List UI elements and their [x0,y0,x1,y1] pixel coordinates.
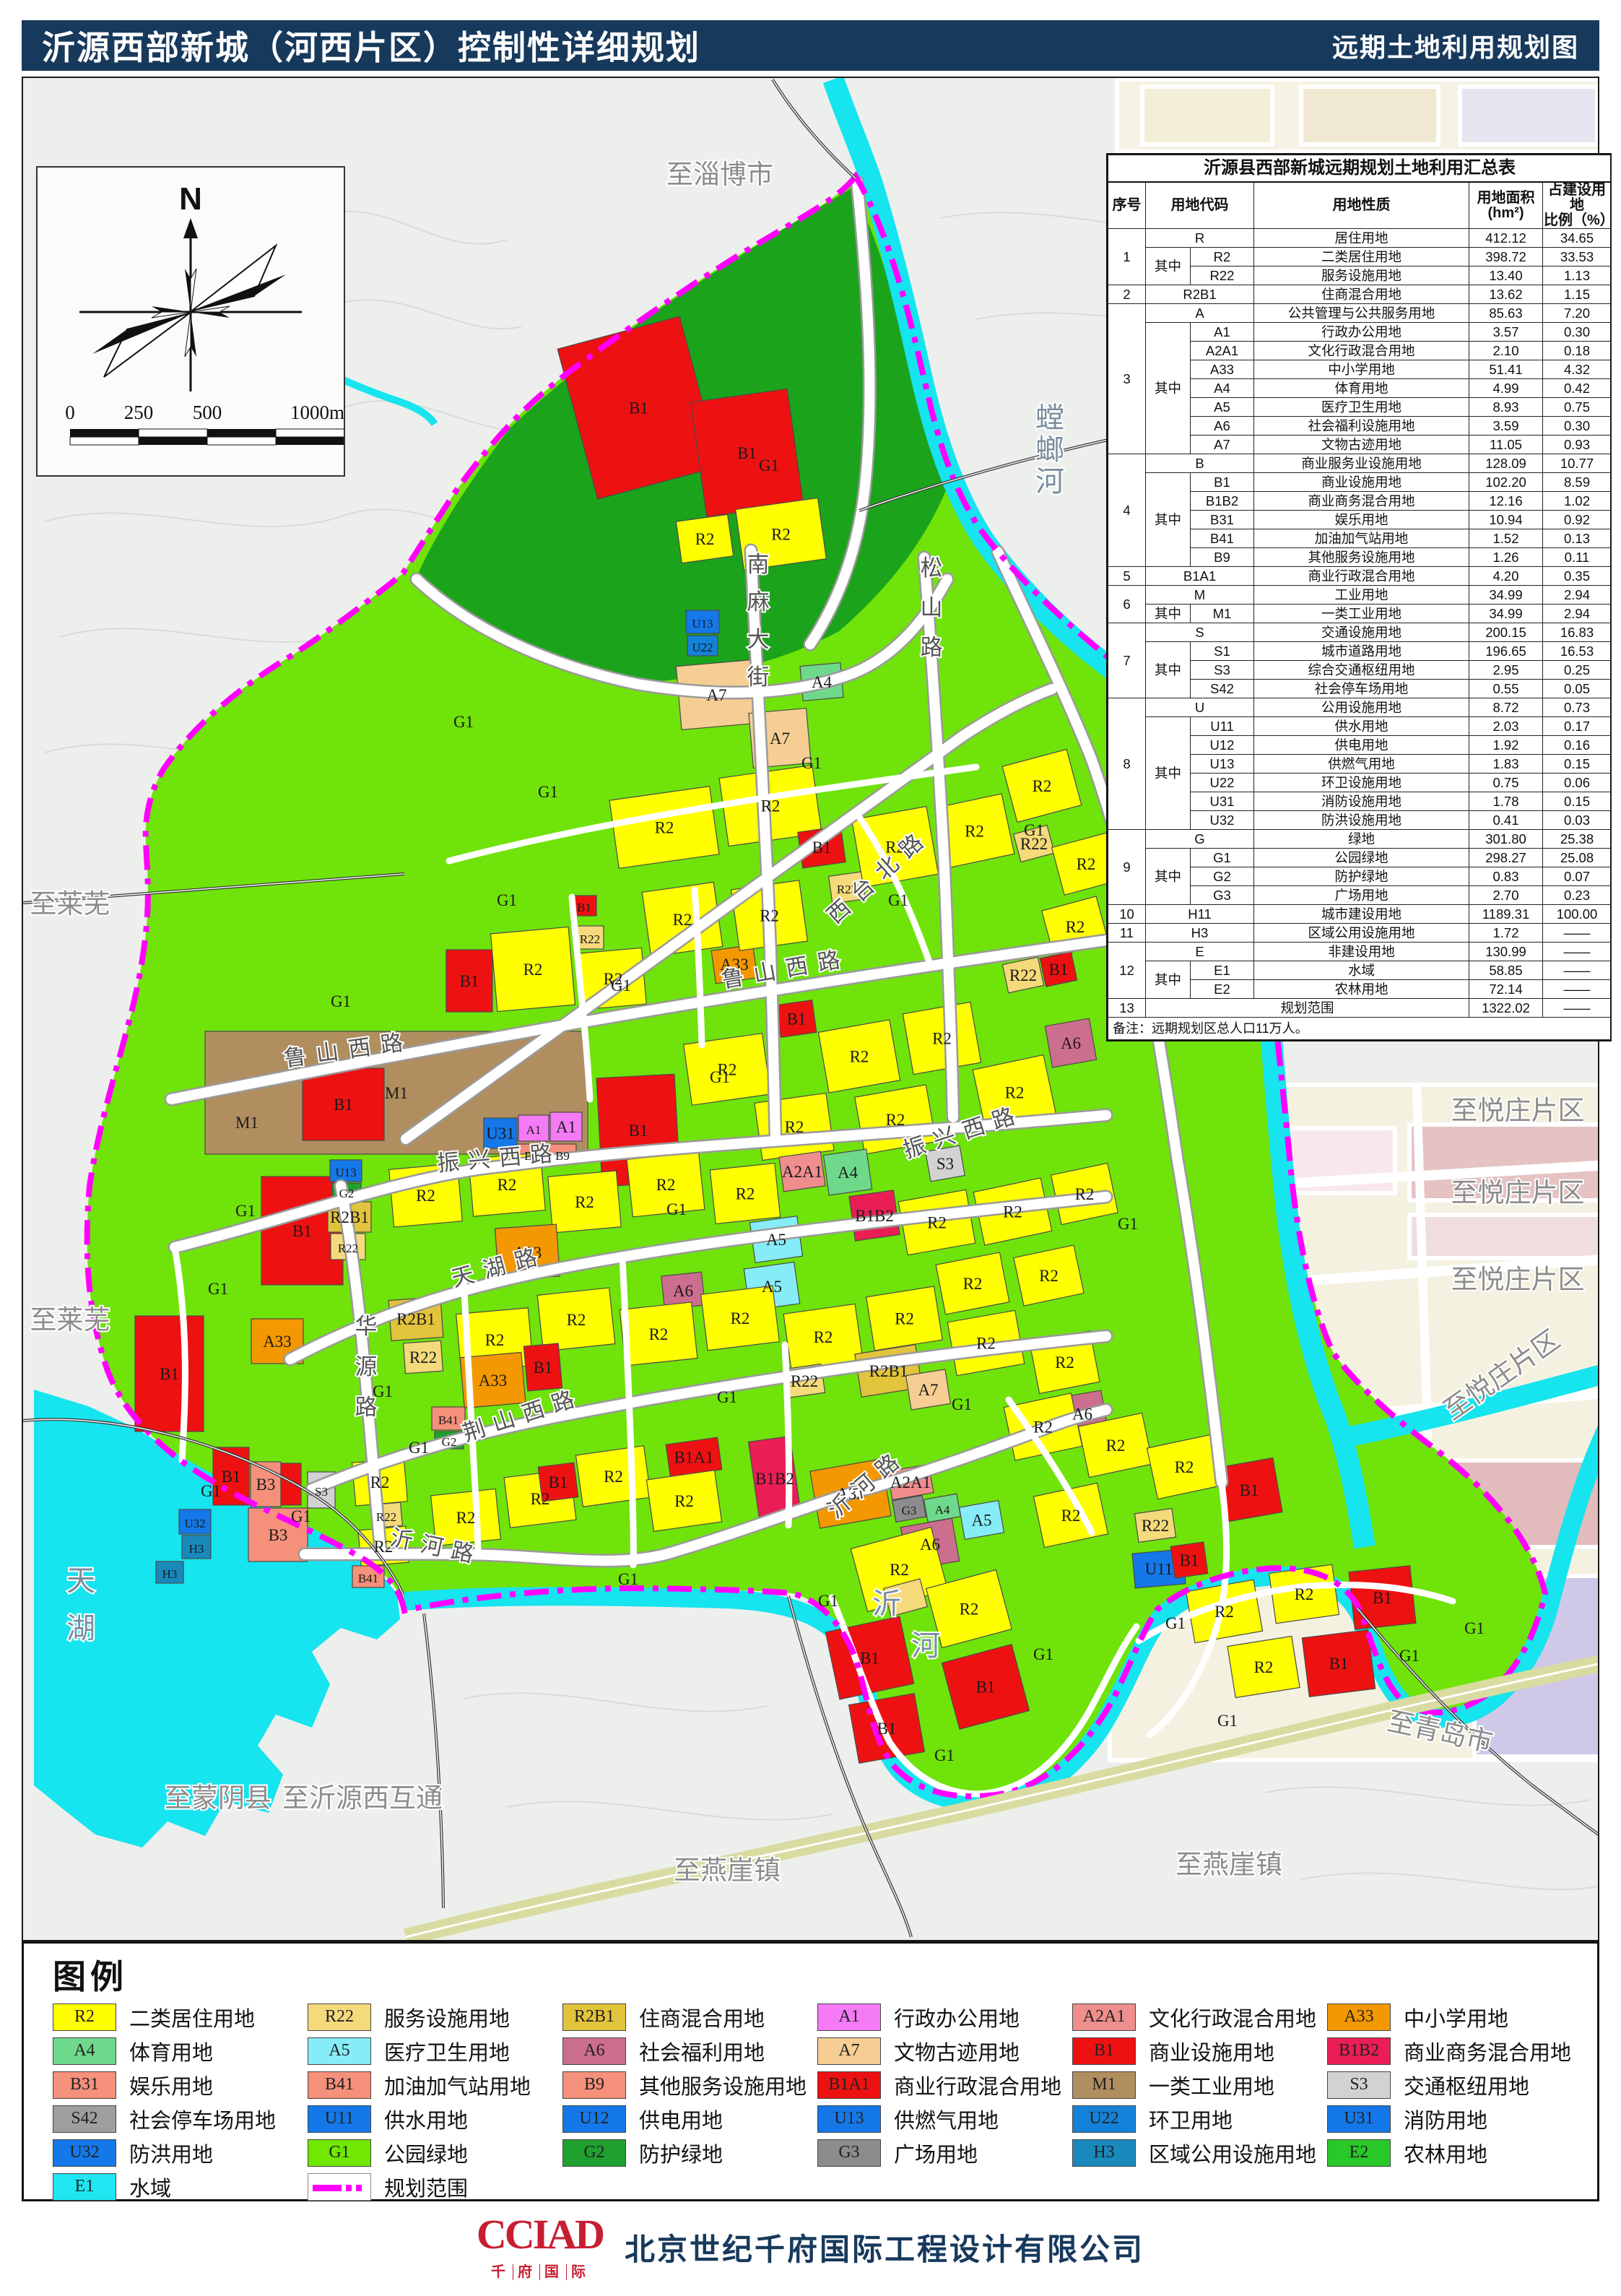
table-row: 其中B1商业设施用地102.208.59 [1108,473,1612,492]
parcel-label: A1 [556,1118,576,1136]
water-label: 沂 [872,1587,901,1620]
legend-swatch: B41 [308,2071,371,2099]
parcel-label: B1 [1240,1481,1259,1499]
legend-item-A2A1: A2A1 文化行政混合用地 [1072,2000,1321,2034]
parcel-label: A5 [766,1231,786,1249]
parcel-label: R2 [370,1473,390,1491]
parcel-label: A6 [1061,1034,1081,1052]
legend-swatch: G3 [817,2139,881,2167]
legend-swatch: H3 [1072,2139,1136,2167]
parcel-label: B3 [256,1476,276,1494]
parcel-label: B1B2 [855,1207,894,1225]
area-label: G1 [888,891,908,909]
legend-item-BOUNDARY: 规划范围 [308,2170,557,2204]
area-label: M1 [235,1114,258,1132]
parcel-label: U13 [692,617,713,631]
legend-item-A6: A6 社会福利用地 [562,2034,812,2068]
parcel-label: A6 [1072,1405,1092,1424]
parcel-label: R2 [760,907,779,925]
legend-item-G3: G3 广场用地 [817,2136,1066,2170]
area-label: G1 [291,1507,311,1525]
parcel-label: R2 [674,1492,694,1510]
parcel-label: B3 [269,1526,288,1544]
legend-item-M1: M1 一类工业用地 [1072,2068,1321,2102]
parcel-label: R2 [1214,1603,1234,1621]
table-row: 其中E1水域58.85—— [1108,961,1612,980]
legend-item-A5: A5 医疗卫生用地 [308,2034,557,2068]
parcel-label: U31 [486,1125,515,1143]
parcel-label: B1 [860,1650,879,1668]
area-label: G1 [717,1388,737,1406]
legend-swatch: A4 [53,2037,116,2065]
parcel-label: B1 [577,901,591,914]
area-label: G1 [1118,1215,1138,1233]
parcel-label: A4 [812,673,833,691]
area-label: G1 [208,1280,228,1298]
parcel-label: R2 [649,1325,669,1343]
area-label: G1 [453,713,474,731]
logo-text: CCIAD [477,2214,603,2256]
legend-item-B31: B31 娱乐用地 [53,2068,302,2102]
parcel-label: A5 [971,1512,991,1530]
compass-rose: N 02505001000m [38,168,344,475]
legend-swatch: R2 [53,2003,116,2031]
table-row: 其中R2二类居住用地398.7233.53 [1108,248,1612,267]
parcel-label: R2 [895,1310,914,1328]
parcel-label: R2 [886,1111,905,1129]
legend-item-R2: R2 二类居住用地 [53,2000,302,2034]
legend-swatch: G1 [308,2139,371,2167]
parcel-label: R2 [890,1561,909,1579]
parcel-label: A6 [920,1535,940,1554]
table-row: 3A公共管理与公共服务用地85.637.20 [1108,304,1612,323]
edge-destination-label: 至蒙阴县 [165,1784,271,1814]
parcel-label: B1 [1373,1589,1392,1607]
area-label: G1 [331,992,351,1010]
parcel-label: R2 [456,1509,476,1527]
parcel-label: B1 [222,1468,241,1486]
edge-destination-label: 至悦庄片区 [1451,1178,1585,1208]
parcel-label: R2 [814,1328,833,1346]
parcel-label: R2 [523,961,543,979]
company-name: 北京世纪千府国际工程设计有限公司 [625,2225,1144,2269]
legend-swatch: U13 [817,2105,881,2133]
parcel-label: R2 [567,1311,586,1329]
legend-swatch: S3 [1327,2071,1391,2099]
parcel-label: B41 [438,1413,459,1427]
parcel-label: A1 [526,1123,542,1137]
table-row: 8U公用设施用地8.720.73 [1108,698,1612,717]
legend-swatch: A2A1 [1072,2003,1136,2031]
legend-item-G1: G1 公园绿地 [308,2136,557,2170]
parcel-label: R2 [497,1176,517,1194]
parcel-label: S3 [936,1155,954,1173]
parcel-label: R2 [1033,777,1052,795]
parcel-label: B1 [1180,1551,1199,1569]
parcel-label: R2 [1066,918,1085,936]
table-title: 沂源县西部新城远期规划土地利用汇总表 [1108,155,1612,183]
parcel-label: B1 [334,1096,353,1114]
parcel-label: R2 [1254,1658,1274,1676]
legend-grid: R2 二类居住用地R22 服务设施用地R2B1 住商混合用地A1 行政办公用地A… [53,2000,1576,2204]
table-row: 1R居住用地412.1234.65 [1108,229,1612,248]
company-logo: CCIAD 千府国际 [477,2214,603,2281]
table-row: 其中U11供水用地2.030.17 [1108,717,1612,736]
parcel-label: A5 [762,1278,782,1296]
road-label: 松山路 [921,555,943,660]
legend-swatch: R2B1 [562,2003,626,2031]
legend-swatch: R22 [308,2003,371,2031]
parcel-label: A6 [673,1282,693,1300]
parcel-label: B1 [292,1222,312,1240]
area-label: G1 [666,1200,687,1218]
parcel-label: R22 [338,1242,358,1255]
page-title: 沂源西部新城（河西片区）控制性详细规划 [42,22,700,69]
parcel-label: R2 [575,1193,594,1211]
parcel-label: B1 [1049,961,1069,979]
legend-swatch: E1 [53,2173,116,2201]
edge-destination-label: 至淄博市 [666,160,773,190]
table-row: 其中G1公园绿地298.2725.08 [1108,849,1612,867]
parcel-label: R2 [1077,855,1096,873]
parcel-label: A4 [838,1164,859,1182]
svg-text:500: 500 [193,402,222,423]
area-label: G1 [538,783,558,801]
area-label: G1 [497,891,517,909]
parcel-label: M1 [385,1084,408,1102]
parcel-label: B41 [358,1572,378,1585]
parcel-label: R2 [976,1335,996,1353]
legend-swatch: B1B2 [1327,2037,1391,2065]
parcel-label: B1 [976,1678,996,1697]
legend-swatch: S42 [53,2105,116,2133]
parcel-label: R2 [1003,1203,1022,1221]
table-row: 10H11城市建设用地1189.31100.00 [1108,905,1612,924]
area-label: G1 [1024,821,1044,839]
area-label: G1 [1033,1645,1053,1663]
legend-item-R22: R22 服务设施用地 [308,2000,557,2034]
parcel-label: R2 [736,1185,755,1203]
parcel-label: U13 [335,1166,356,1179]
area-label: G1 [611,976,631,995]
edge-destination-label: 至悦庄片区 [1451,1265,1585,1295]
table-row: 7S交通设施用地200.1516.83 [1108,623,1612,642]
legend-item-B41: B41 加油加气站用地 [308,2068,557,2102]
svg-text:250: 250 [124,402,154,423]
parcel-label: A7 [918,1381,938,1399]
table-row: 11H3区域公用设施用地1.72—— [1108,924,1612,943]
parcel-label: U11 [1145,1560,1173,1578]
parcel-label: R22 [580,932,600,946]
legend-item-A4: A4 体育用地 [53,2034,302,2068]
legend-swatch: A33 [1327,2003,1391,2031]
parcel-label: R2 [1075,1185,1095,1203]
parcel-label: R2 [731,1309,750,1327]
parcel-label: B1B2 [755,1470,794,1488]
legend-item-A7: A7 文物古迹用地 [817,2034,1066,2068]
road-label: 华源路 [355,1314,378,1420]
legend-swatch: U22 [1072,2105,1136,2133]
title-bar: 沂源西部新城（河西片区）控制性详细规划 远期土地利用规划图 [22,20,1599,71]
parcel-label: H3 [162,1567,178,1581]
legend-item-G2: G2 防护绿地 [562,2136,812,2170]
parcel-label: A7 [770,729,790,748]
legend-swatch: G2 [562,2139,626,2167]
area-label: G1 [818,1592,838,1610]
area-label: G1 [801,754,822,772]
parcel-label: R2 [1061,1507,1081,1525]
parcel-label: R2 [761,797,781,815]
parcel-label: R2 [1295,1585,1314,1603]
parcel-label: R2B1 [330,1208,369,1226]
area-label: G1 [952,1395,972,1413]
edge-destination-label: 至莱芜 [30,1306,110,1335]
parcel-label: G3 [902,1504,917,1517]
area-label: G1 [1165,1614,1186,1632]
table-note: 备注：远期规划区总人口11万人。 [1108,1018,1612,1040]
area-label: G1 [235,1202,256,1220]
water-label: 河 [911,1629,940,1662]
legend-swatch: U32 [53,2139,116,2167]
parcel-label: R2 [655,819,674,837]
parcel-label: R2 [1039,1267,1059,1285]
legend-item-U31: U31 消防用地 [1327,2102,1576,2136]
compass-scale-box: N 02505001000m [36,166,345,477]
water-label: 螳螂河 [1035,402,1064,498]
table-row: 9G绿地301.8025.38 [1108,830,1612,849]
parcel-label: R2B1 [869,1362,908,1380]
parcel-label: B1A1 [674,1449,714,1467]
parcel-label: G2 [339,1187,355,1200]
svg-text:1000m: 1000m [290,402,344,423]
page-subtitle: 远期土地利用规划图 [1332,27,1579,64]
parcel-label: R22 [1009,966,1037,984]
parcel-label: R2 [963,1275,983,1293]
parcel-label: B1 [1329,1655,1349,1673]
parcel-label: R22 [409,1348,437,1366]
parcel-label: R22 [1142,1517,1169,1535]
parcel-label: R2 [850,1048,869,1066]
parcel-label: B1 [629,399,648,417]
parcel-label: B1 [160,1365,179,1383]
legend-swatch: B1 [1072,2037,1136,2065]
parcel-label: S3 [315,1485,328,1499]
area-label: G1 [710,1068,730,1086]
parcel-label: A2A1 [782,1163,822,1181]
legend-title: 图例 [53,1951,128,1998]
parcel-label: B1 [787,1010,807,1028]
legend-item-U11: U11 供水用地 [308,2102,557,2136]
legend-item-U32: U32 防洪用地 [53,2136,302,2170]
legend-swatch: B1A1 [817,2071,881,2099]
parcel-label: R2 [927,1214,947,1232]
legend-swatch: A5 [308,2037,371,2065]
parcel-label: R2B1 [396,1310,435,1328]
table-row: 4B商业服务业设施用地128.0910.77 [1108,454,1612,473]
legend-swatch: A7 [817,2037,881,2065]
parcel-label: R2 [785,1118,804,1136]
parcel-label: B1 [534,1359,553,1377]
legend-swatch: A1 [817,2003,881,2031]
parcel-label: R2 [932,1030,952,1048]
edge-destination-label: 至悦庄片区 [1451,1096,1585,1126]
legend-item-B1B2: B1B2 商业商务混合用地 [1327,2034,1576,2068]
table-row: 5B1A1商业行政混合用地4.200.35 [1108,567,1612,586]
legend: 图例 R2 二类居住用地R22 服务设施用地R2B1 住商混合用地A1 行政办公… [22,1941,1599,2201]
parcel-label: A33 [479,1372,508,1390]
boundary-line-swatch [308,2173,371,2201]
legend-swatch: B9 [562,2071,626,2099]
legend-item-E1: E1 水域 [53,2170,302,2204]
edge-destination-label: 至莱芜 [30,890,110,919]
parcel-label: R2 [531,1490,550,1508]
parcel-label: U32 [184,1517,205,1530]
table-row: 13规划范围1322.02—— [1108,999,1612,1018]
area-label: G1 [201,1482,221,1500]
legend-item-B9: B9 其他服务设施用地 [562,2068,812,2102]
area-label: G1 [1464,1619,1485,1637]
parcel-label: R2 [960,1600,979,1619]
area-label: G1 [759,456,779,475]
parcel-label: H3 [189,1542,204,1556]
parcel-label: B1 [877,1720,897,1738]
legend-swatch: B31 [53,2071,116,2099]
parcel-label: A4 [935,1503,950,1517]
parcel-label: R22 [376,1510,396,1524]
table-row: 2R2B1住商混合用地13.621.15 [1108,285,1612,304]
parcel-label: R22 [791,1372,818,1390]
footer: CCIAD 千府国际 北京世纪千府国际工程设计有限公司 [22,2204,1599,2289]
parcel-label: U22 [692,641,713,654]
edge-destination-label: 至沂源西互通 [282,1784,443,1814]
scale-bar [70,429,344,445]
svg-text:0: 0 [65,402,75,423]
legend-swatch: A6 [562,2037,626,2065]
legend-swatch: U11 [308,2105,371,2133]
legend-item-B1A1: B1A1 商业行政混合用地 [817,2068,1066,2102]
parcel-label: B1 [629,1122,648,1140]
legend-swatch: E2 [1327,2139,1391,2167]
legend-swatch: U12 [562,2105,626,2133]
area-label: G1 [409,1439,429,1457]
parcel-label: R2 [1175,1458,1194,1476]
parcel-label: R2 [965,823,984,841]
parcel-label: R2 [1033,1418,1053,1437]
legend-item-S3: S3 交通枢纽用地 [1327,2068,1576,2102]
edge-destination-label: 至燕崖镇 [674,1856,781,1886]
area-label: G1 [1217,1712,1238,1730]
legend-swatch: U31 [1327,2105,1391,2133]
table-row: 12E非建设用地130.99—— [1108,943,1612,961]
edge-destination-label: 至燕崖镇 [1175,1850,1282,1880]
parcel-label: R2 [1106,1437,1126,1455]
logo-subtext: 千府国际 [487,2260,593,2281]
area-label: G1 [1399,1647,1420,1665]
legend-item-E2: E2 农林用地 [1327,2136,1576,2170]
parcel-label: R2 [656,1176,676,1194]
legend-item-A1: A1 行政办公用地 [817,2000,1066,2034]
legend-item-R2B1: R2B1 住商混合用地 [562,2000,812,2034]
parcel-label: R2 [1055,1353,1074,1372]
parcel-label: R2 [771,526,791,544]
legend-item-U22: U22 环卫用地 [1072,2102,1321,2136]
north-label: N [179,181,202,217]
parcel-label: A2A1 [890,1473,931,1491]
legend-item-U12: U12 供电用地 [562,2102,812,2136]
legend-item-B1: B1 商业设施用地 [1072,2034,1321,2068]
parcel-label: R2 [673,911,692,929]
area-label: G1 [618,1570,638,1588]
parcel-label: A33 [263,1333,292,1351]
table-row: 其中S1城市道路用地196.6516.53 [1108,642,1612,661]
parcel-label: B1 [737,444,757,462]
parcel-label: R2 [604,1468,623,1486]
area-label: G1 [934,1746,955,1764]
parcel-label: B1 [549,1473,568,1491]
legend-item-A33: A33 中小学用地 [1327,2000,1576,2034]
table-row: 其中A1行政办公用地3.570.30 [1108,323,1612,342]
parcel-label: R2 [485,1331,505,1349]
table-row: 6M工业用地34.992.94 [1108,586,1612,605]
legend-swatch: M1 [1072,2071,1136,2099]
table-header: 序号用地代码用地性质 用地面积(hm²)占建设用地比例（%） [1108,182,1612,229]
parcel-label: A7 [706,686,726,704]
legend-item-S42: S42 社会停车场用地 [53,2102,302,2136]
table-row: 其中M1一类工业用地34.992.94 [1108,605,1612,623]
legend-item-H3: H3 区域公用设施用地 [1072,2136,1321,2170]
parcel-label: B1 [460,972,479,990]
parcel-label: B1 [812,839,832,857]
legend-item-U13: U13 供燃气用地 [817,2102,1066,2136]
land-use-summary-table: 沂源县西部新城远期规划土地利用汇总表 序号用地代码用地性质 用地面积(hm²)占… [1106,153,1612,1041]
parcel-label: G2 [442,1435,457,1449]
parcel-label: R2 [695,530,715,548]
parcel-label: R2 [1005,1084,1025,1102]
parcel-label: R2 [416,1187,435,1205]
